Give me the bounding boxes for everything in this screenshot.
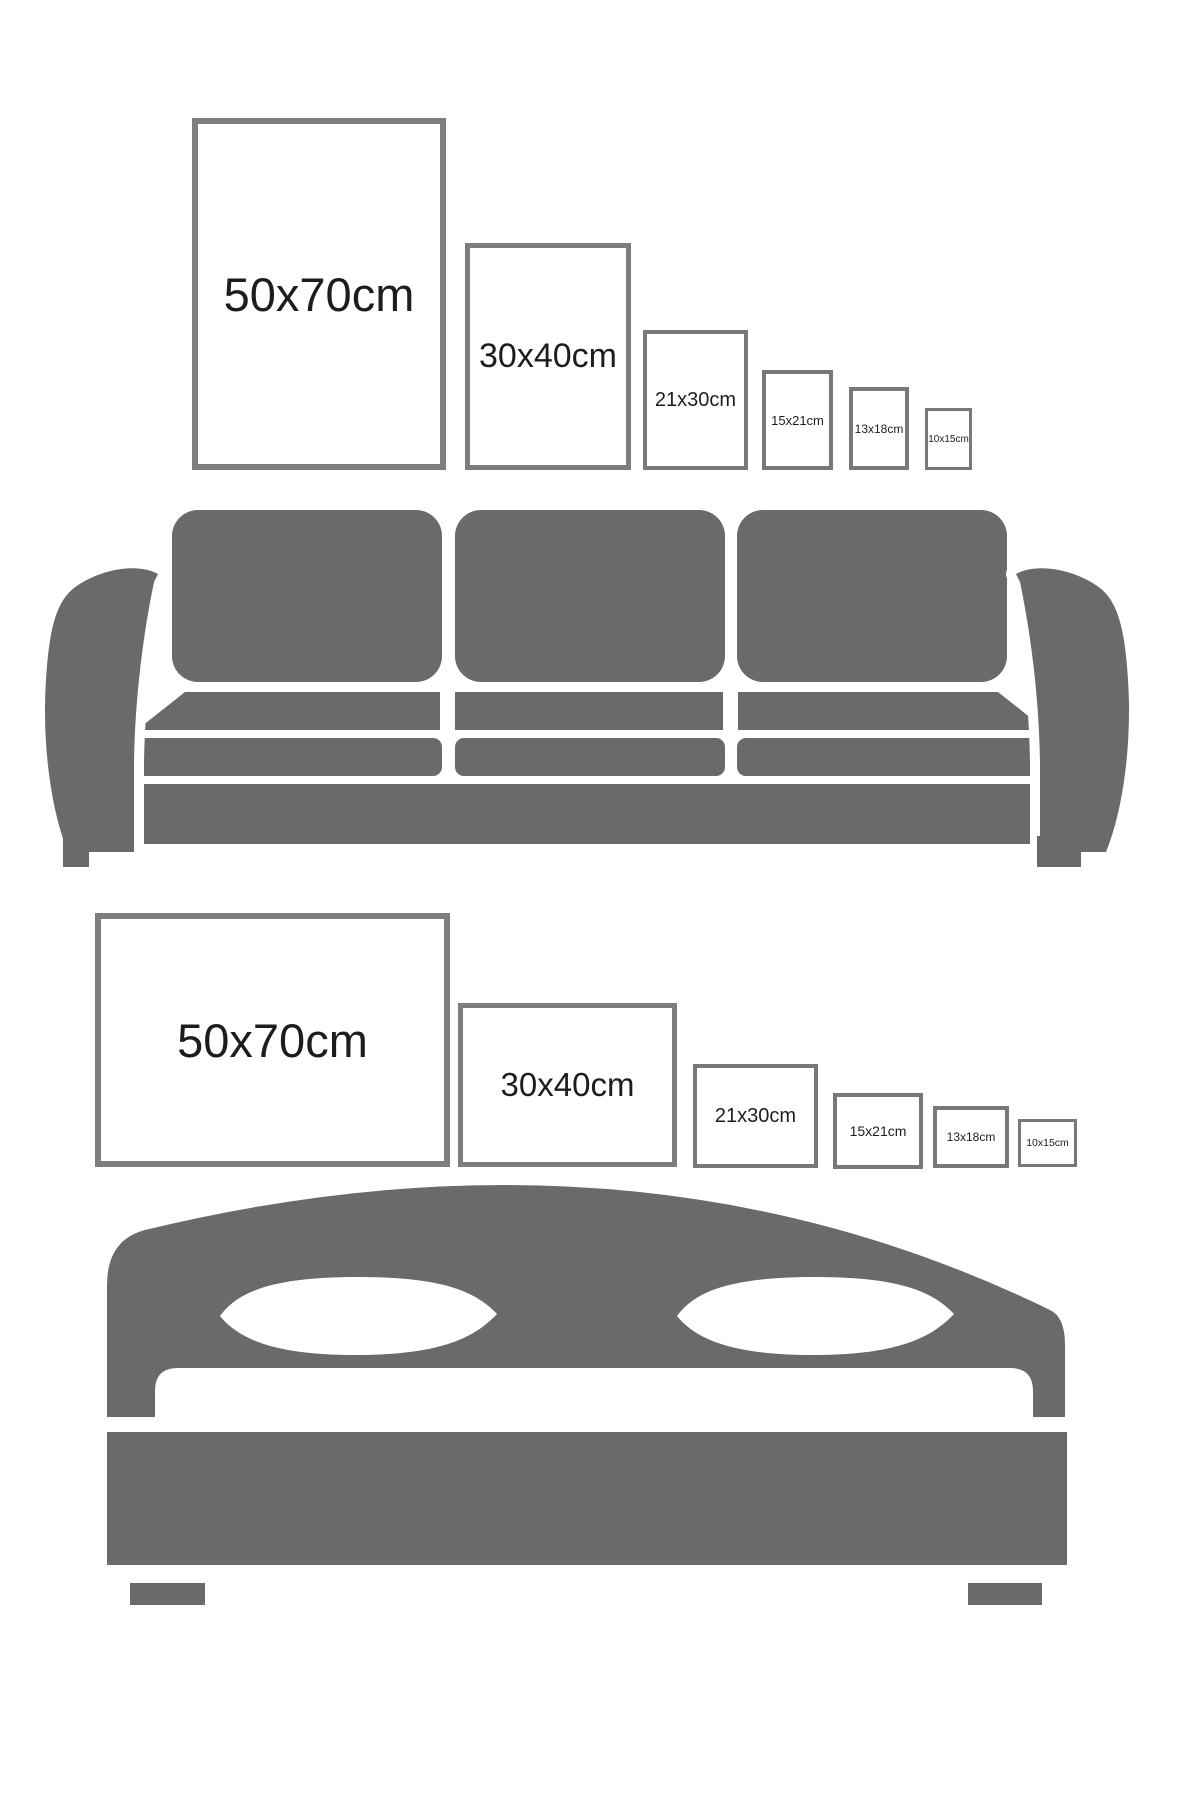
frame-50x70-landscape: 50x70cm — [95, 913, 450, 1167]
frame-size-label: 30x40cm — [479, 337, 617, 376]
sofa-seat-cushions — [102, 738, 1078, 776]
frame-size-label: 15x21cm — [771, 413, 824, 428]
frame-size-label: 13x18cm — [855, 422, 904, 436]
frame-size-label: 50x70cm — [177, 1013, 368, 1068]
frame-10x15-landscape: 10x15cm — [1018, 1119, 1077, 1167]
sofa-illustration — [40, 440, 1130, 870]
frame-size-label: 13x18cm — [947, 1130, 996, 1144]
frame-13x18-landscape: 13x18cm — [933, 1106, 1009, 1168]
sofa-armrest-left — [45, 568, 158, 852]
bed-legs — [130, 1583, 1042, 1605]
frame-21x30-landscape: 21x30cm — [693, 1064, 818, 1168]
frame-15x21-landscape: 15x21cm — [833, 1093, 923, 1169]
frame-30x40-portrait: 30x40cm — [465, 243, 631, 470]
frame-size-label: 15x21cm — [850, 1123, 907, 1139]
sofa-armrest-right — [1016, 568, 1129, 852]
frame-size-label: 21x30cm — [715, 1105, 796, 1128]
poster-size-guide: 50x70cm 30x40cm 21x30cm 15x21cm 13x18cm … — [0, 0, 1200, 1800]
frame-50x70-portrait: 50x70cm — [192, 118, 446, 470]
frame-size-label: 50x70cm — [224, 267, 415, 322]
sofa-seat-deck — [137, 692, 1046, 730]
sofa-back-cushions — [172, 510, 1007, 682]
frame-size-label: 30x40cm — [501, 1066, 635, 1104]
frame-size-label: 10x15cm — [1026, 1137, 1069, 1149]
bed-illustration — [100, 1185, 1070, 1610]
frame-size-label: 21x30cm — [655, 389, 736, 412]
sofa-base — [110, 784, 1089, 844]
frame-30x40-landscape: 30x40cm — [458, 1003, 677, 1167]
bed-base — [107, 1432, 1067, 1565]
sofa-body — [102, 510, 1089, 844]
